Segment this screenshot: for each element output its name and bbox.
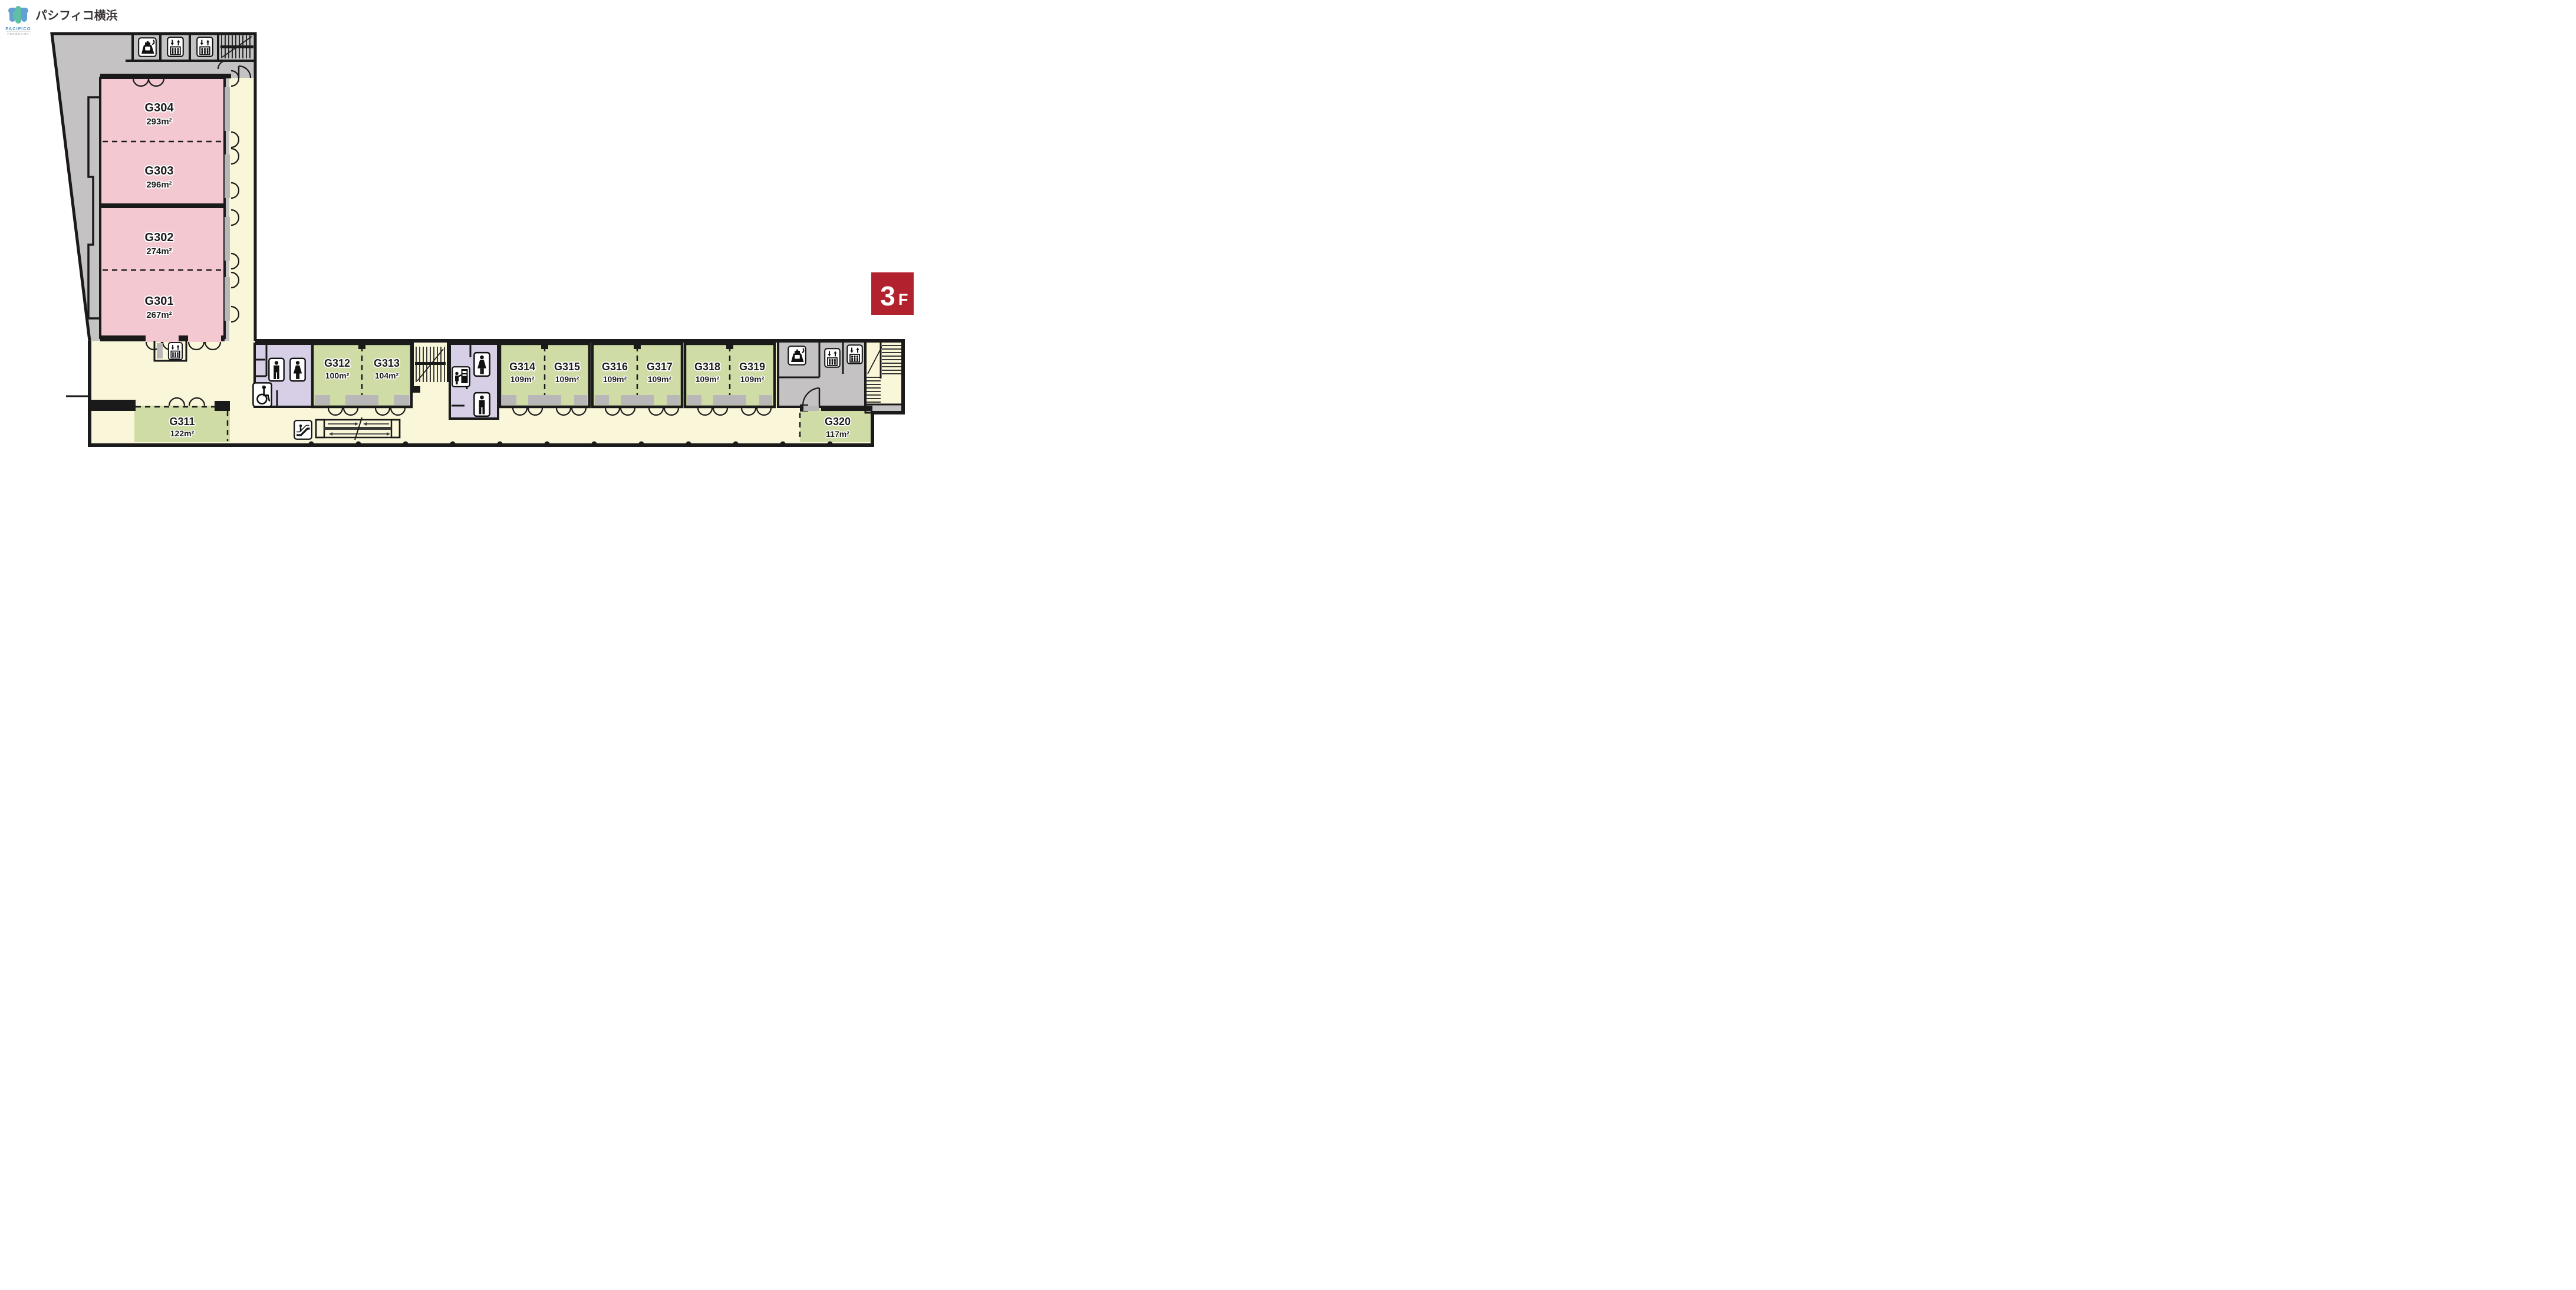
floor-plan-page: G304 293m² G303 296m² G302 274m² G301 26… xyxy=(0,0,924,463)
room-g315: G315 109m² xyxy=(554,361,580,384)
room-g303: G303 296m² xyxy=(145,164,174,190)
room-g312: G312 100m² xyxy=(324,357,350,380)
elevator-icon xyxy=(847,345,862,364)
svg-text:G301: G301 xyxy=(145,295,174,308)
room-g311: G311 122m² xyxy=(169,416,195,438)
room-g317: G317 109m² xyxy=(647,361,673,384)
logo-text: パシフィコ横浜 xyxy=(35,8,118,22)
svg-text:G317: G317 xyxy=(647,361,673,373)
svg-text:G303: G303 xyxy=(145,164,174,177)
room-g302: G302 274m² xyxy=(145,231,174,256)
svg-text:109m²: 109m² xyxy=(555,374,579,384)
female-toilet-icon xyxy=(474,353,489,376)
room-g318: G318 109m² xyxy=(694,361,720,384)
pantry-icon xyxy=(139,38,156,57)
wheelchair-icon xyxy=(253,383,271,406)
svg-text:109m²: 109m² xyxy=(740,374,765,384)
svg-text:109m²: 109m² xyxy=(510,374,535,384)
svg-text:117m²: 117m² xyxy=(826,429,849,439)
svg-text:G319: G319 xyxy=(739,361,765,373)
room-g316: G316 109m² xyxy=(602,361,628,384)
svg-text:3: 3 xyxy=(880,281,895,311)
svg-text:104m²: 104m² xyxy=(375,371,399,380)
svg-text:G304: G304 xyxy=(145,101,174,114)
svg-text:G302: G302 xyxy=(145,231,174,244)
male-toilet-icon xyxy=(474,393,489,416)
svg-text:109m²: 109m² xyxy=(603,374,627,384)
logo-mark: PACIFICO YOKOHAMA xyxy=(5,6,31,35)
room-g319: G319 109m² xyxy=(739,361,765,384)
svg-text:109m²: 109m² xyxy=(696,374,720,384)
svg-text:G316: G316 xyxy=(602,361,628,373)
svg-text:G313: G313 xyxy=(374,357,400,369)
svg-text:G318: G318 xyxy=(694,361,720,373)
male-toilet-icon xyxy=(269,358,284,381)
svg-text:274m²: 274m² xyxy=(146,246,172,256)
room-g320: G320 117m² xyxy=(825,416,851,439)
vending-machine-icon xyxy=(452,367,470,387)
logo: PACIFICO YOKOHAMA パシフィコ横浜 xyxy=(5,6,117,35)
svg-text:267m²: 267m² xyxy=(146,310,172,320)
svg-text:PACIFICO: PACIFICO xyxy=(5,26,31,31)
svg-text:G314: G314 xyxy=(509,361,535,373)
svg-text:F: F xyxy=(898,291,908,308)
room-g313: G313 104m² xyxy=(374,357,400,380)
floor-badge: 3 F xyxy=(871,272,914,315)
room-g314: G314 109m² xyxy=(509,361,535,384)
floor-plan-svg: G304 293m² G303 296m² G302 274m² G301 26… xyxy=(0,0,924,463)
svg-text:100m²: 100m² xyxy=(325,371,350,380)
room-g304: G304 293m² xyxy=(145,101,174,127)
svg-text:G315: G315 xyxy=(554,361,580,373)
svg-text:122m²: 122m² xyxy=(170,429,195,438)
escalator-icon xyxy=(294,420,312,439)
svg-text:109m²: 109m² xyxy=(648,374,672,384)
elevator-icon xyxy=(167,37,183,57)
svg-text:293m²: 293m² xyxy=(146,117,172,127)
svg-text:296m²: 296m² xyxy=(146,180,172,190)
elevator-icon xyxy=(825,348,840,367)
svg-text:G320: G320 xyxy=(825,416,851,427)
elevator-icon xyxy=(169,343,182,360)
svg-text:G312: G312 xyxy=(324,357,350,369)
svg-text:G311: G311 xyxy=(169,416,195,427)
room-g301: G301 267m² xyxy=(145,295,174,320)
svg-text:YOKOHAMA: YOKOHAMA xyxy=(7,32,29,35)
pantry-icon xyxy=(788,346,806,365)
female-toilet-icon xyxy=(290,358,305,381)
elevator-icon xyxy=(197,37,213,57)
